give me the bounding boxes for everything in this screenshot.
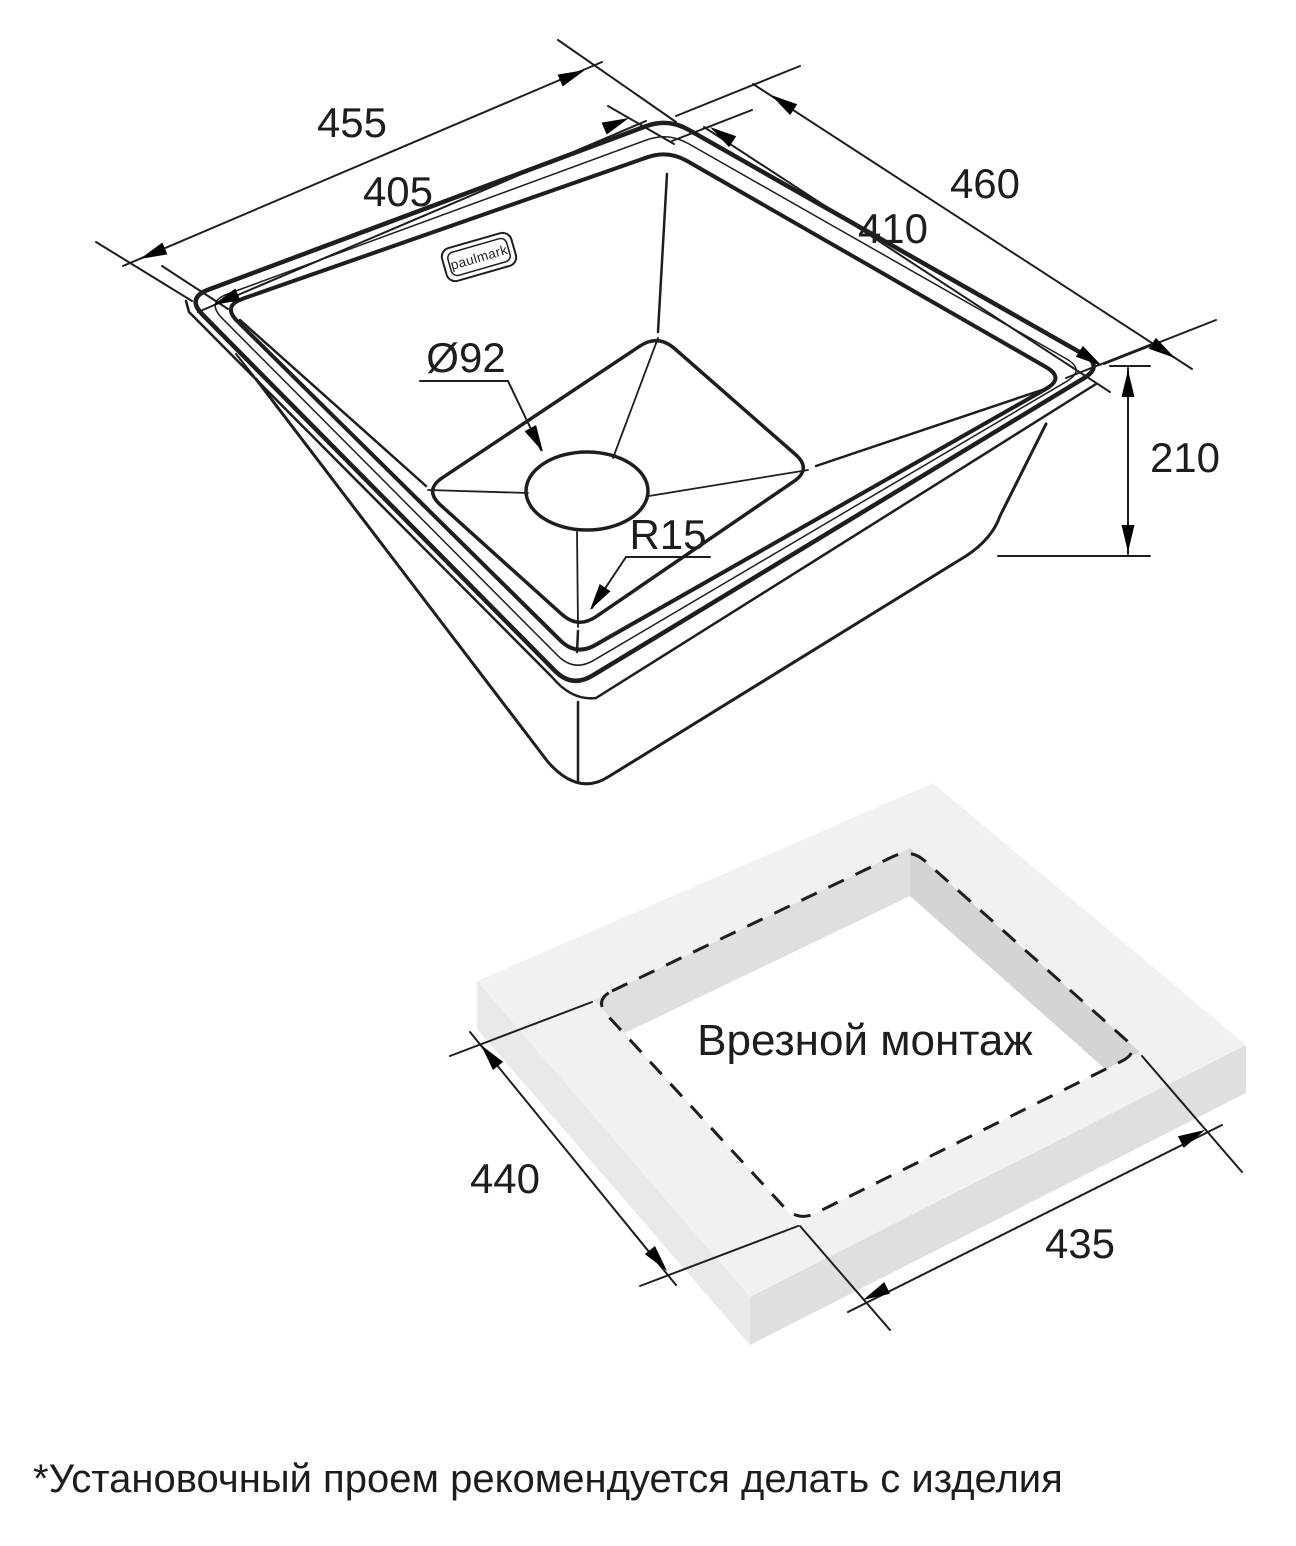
dim-overall-depth: 460 bbox=[676, 66, 1216, 369]
dim-bowl-depth: 410 bbox=[672, 110, 1152, 392]
cutout-isometric-view: 440 435 Врезной монтаж bbox=[450, 783, 1246, 1345]
footnote-text: *Установочный проем рекомендуется делать… bbox=[33, 1457, 1063, 1501]
sink-base bbox=[236, 354, 1046, 784]
callout-drain-diameter: Ø92 bbox=[420, 334, 549, 455]
brand-logo: paulmark bbox=[440, 231, 519, 284]
sink-rim-profile-line bbox=[215, 137, 1076, 665]
callout-corner-radius: R15 bbox=[585, 511, 710, 614]
dim-overall-depth-label: 460 bbox=[950, 160, 1020, 207]
cutout-view-title: Врезной монтаж bbox=[697, 1016, 1033, 1065]
dim-bowl-width-label: 405 bbox=[363, 168, 433, 215]
dim-bowl-depth-label: 410 bbox=[858, 205, 928, 252]
dim-height-label: 210 bbox=[1150, 434, 1220, 481]
callout-corner-radius-label: R15 bbox=[629, 511, 706, 558]
dim-cutout-length-label: 435 bbox=[1045, 1220, 1115, 1267]
sink-rim-underside bbox=[186, 301, 1096, 698]
sink-bowl-opening-edge bbox=[231, 154, 1056, 649]
dim-bowl-width: 405 bbox=[162, 106, 674, 312]
dim-cutout-width-label: 440 bbox=[470, 1155, 540, 1202]
sink-isometric-view: paulmark 455 405 460 bbox=[96, 40, 1220, 784]
technical-drawing: 440 435 Врезной монтаж bbox=[0, 0, 1296, 1546]
dim-overall-width-label: 455 bbox=[317, 99, 387, 146]
callout-drain-diameter-label: Ø92 bbox=[426, 334, 505, 381]
